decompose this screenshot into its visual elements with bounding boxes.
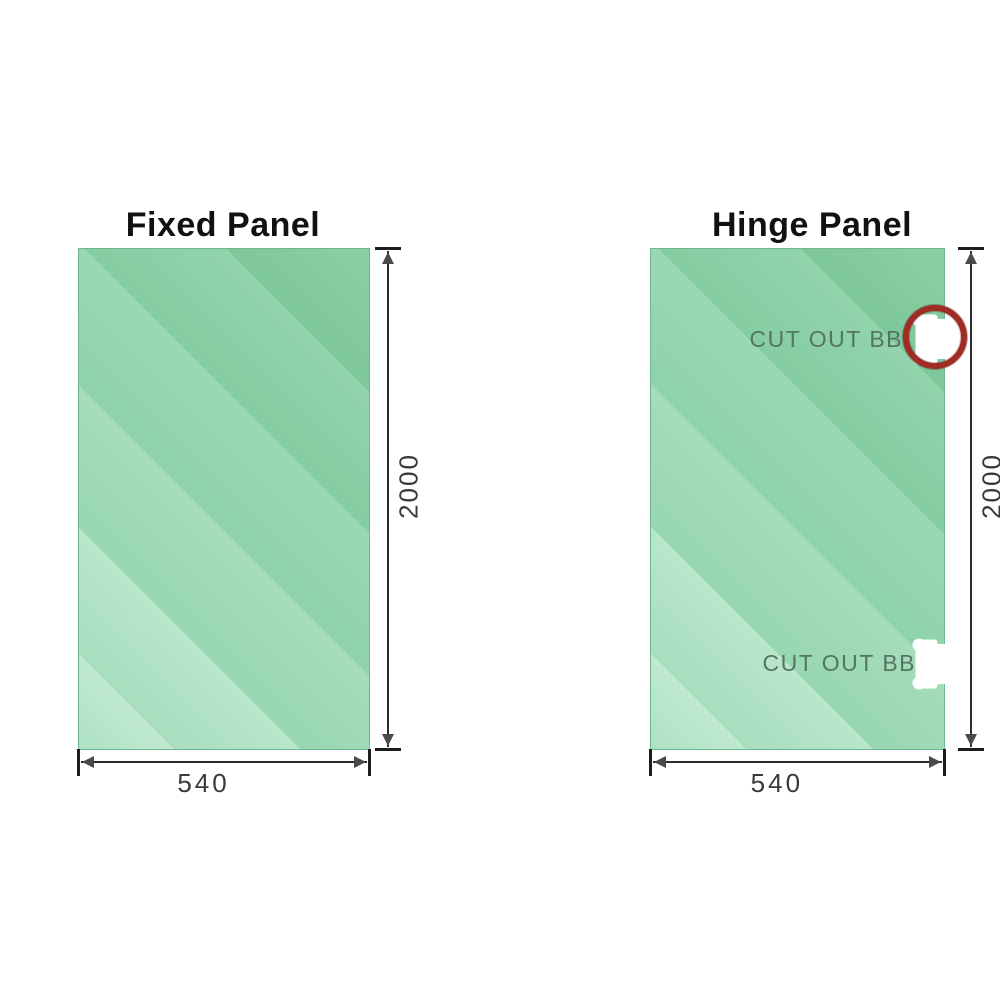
dimension-tick: [375, 748, 401, 751]
arrow-up-icon: [965, 252, 977, 264]
fixed-panel-glass: [78, 248, 370, 750]
fixed-panel-width-label: 540: [177, 768, 229, 799]
cutout-label-bottom: CUT OUT BB: [763, 650, 916, 677]
fixed-panel-width-dimension: 540: [78, 749, 370, 793]
arrow-left-icon: [654, 756, 666, 768]
hinge-panel-height-dimension: 2000: [958, 248, 984, 750]
arrow-down-icon: [382, 734, 394, 746]
arrow-left-icon: [82, 756, 94, 768]
fixed-panel-title: Fixed Panel: [126, 206, 320, 245]
hinge-panel-width-dimension: 540: [650, 749, 945, 793]
hinge-panel-width-label: 540: [751, 768, 803, 799]
dimension-tick: [958, 247, 984, 250]
dimension-line: [81, 761, 367, 763]
dimension-tick: [375, 247, 401, 250]
dimension-tick: [943, 749, 946, 776]
dimension-line: [387, 251, 389, 747]
dimension-tick: [77, 749, 80, 776]
dimension-line: [970, 251, 972, 747]
cutout-label-top: CUT OUT BB: [750, 326, 903, 353]
hinge-panel-height-label: 2000: [977, 454, 1000, 520]
arrow-right-icon: [354, 756, 366, 768]
fixed-panel-height-dimension: 2000: [375, 248, 401, 750]
hinge-cutout-bottom: [911, 634, 945, 694]
arrow-down-icon: [965, 734, 977, 746]
fixed-panel-height-label: 2000: [394, 454, 425, 520]
arrow-right-icon: [929, 756, 941, 768]
dimension-line: [653, 761, 942, 763]
hinge-panel-title: Hinge Panel: [712, 206, 912, 245]
dimension-tick: [958, 748, 984, 751]
shower-panels-diagram: Fixed Panel 2000 540 Hinge Panel: [0, 0, 1000, 1000]
arrow-up-icon: [382, 252, 394, 264]
dimension-tick: [368, 749, 371, 776]
dimension-tick: [649, 749, 652, 776]
